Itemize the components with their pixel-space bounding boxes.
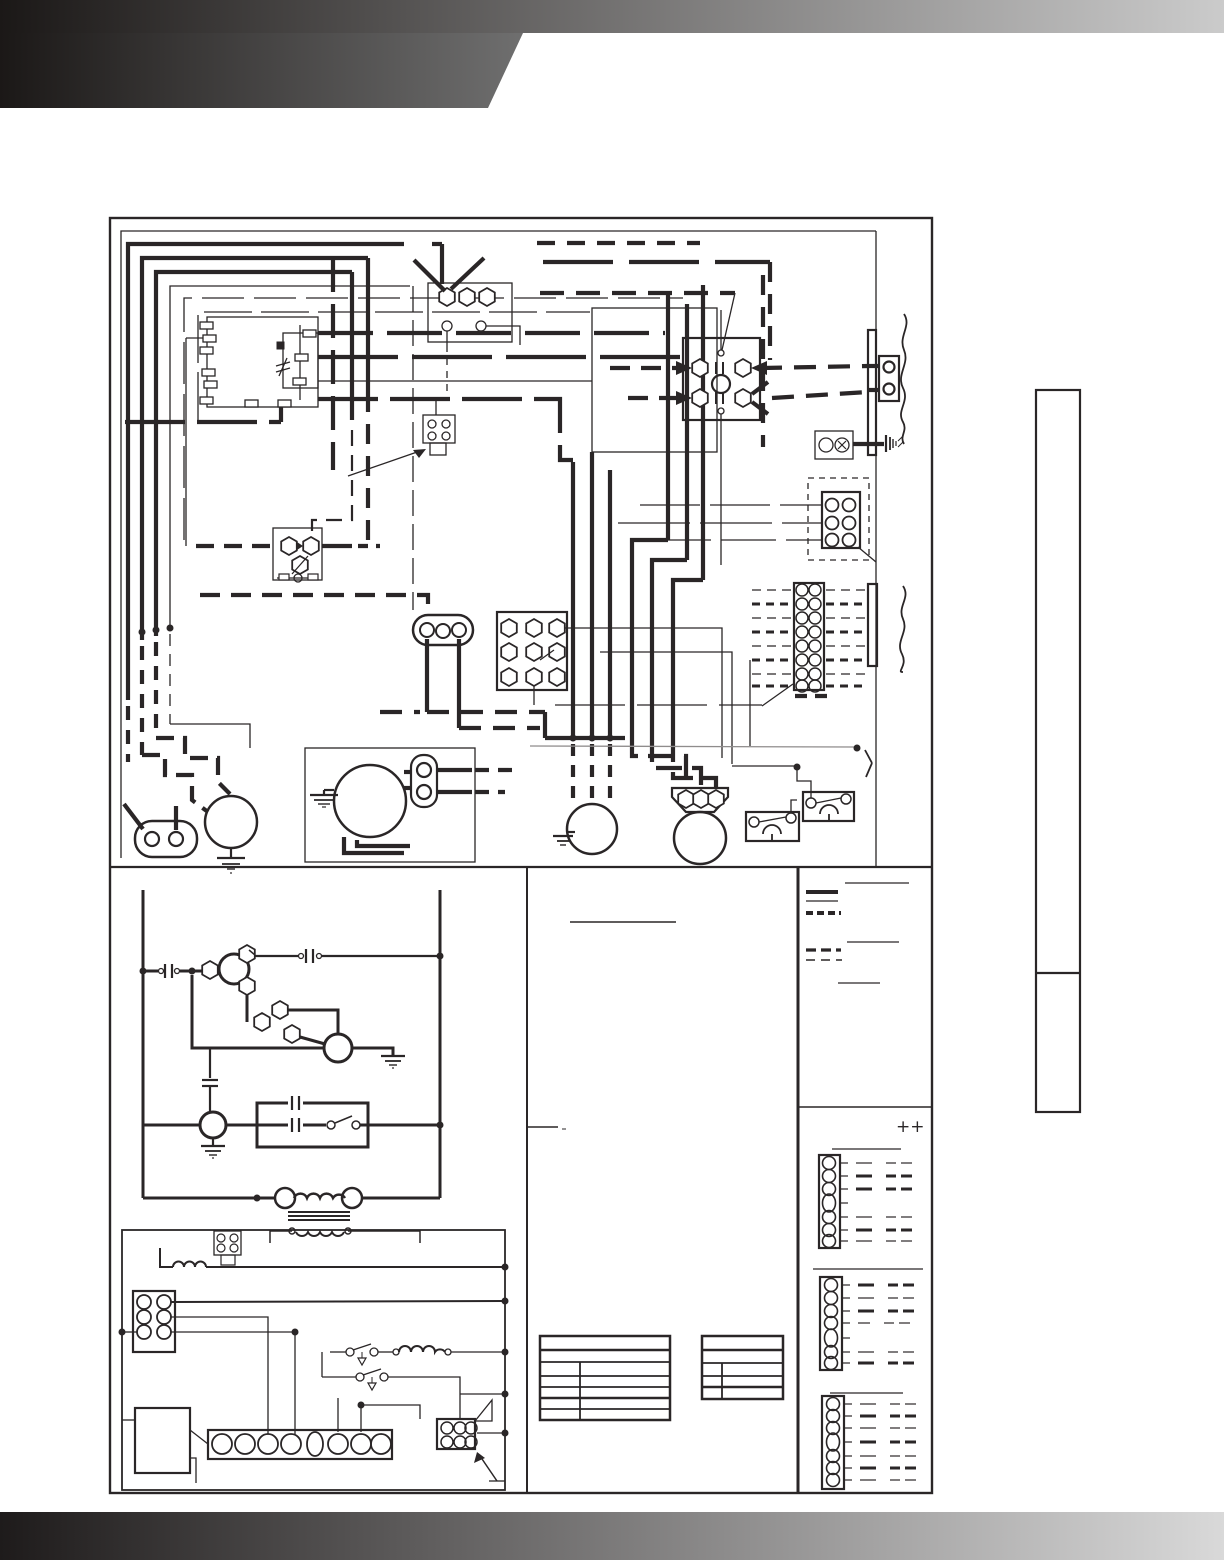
thermostat-strip-1: [819, 1155, 912, 1248]
igniter-box: [122, 1408, 208, 1483]
ladder-schematic: [140, 890, 444, 1243]
pressure-switch-1: [746, 812, 799, 841]
sidebar-tab: [1036, 390, 1080, 1112]
transformer: [270, 1188, 420, 1243]
thermostat-strip-2: [820, 1277, 914, 1370]
flame-rollout-switches: [322, 1344, 388, 1390]
plug-connector-4pin: [348, 400, 455, 476]
table-2: [702, 1336, 783, 1399]
blower-motor-box: [305, 748, 520, 862]
compressor: [672, 788, 728, 864]
document-page: ++: [0, 0, 1224, 1560]
gas-control-section: [119, 1230, 509, 1490]
low-voltage-terminal-strip-16: [752, 583, 877, 696]
brace-icon: [900, 586, 906, 672]
oval-plug-2pin: [135, 806, 197, 857]
plug-6pin-gas: [133, 1291, 175, 1352]
wire-bundle: [530, 262, 855, 800]
oval-connector-3pin: [380, 615, 545, 728]
control-board: [200, 317, 684, 460]
field-wiring-edge: [808, 314, 907, 777]
plug-connector-4pin-small: [214, 1231, 241, 1265]
relay: [273, 528, 380, 582]
legend-note-marker: ++: [896, 1117, 925, 1137]
plug-6pin-ignition: [437, 1400, 492, 1449]
plug-2pin: [815, 431, 853, 459]
terminal-block-9-lug: [497, 612, 567, 705]
plug-6pin: [822, 492, 876, 562]
table-1: [540, 1336, 670, 1420]
contactor: [610, 338, 868, 420]
burner-terminal-strip-8: [208, 1430, 392, 1459]
blower-motor: [553, 804, 617, 854]
legend-column: ++: [798, 883, 932, 1489]
notes-column: [527, 922, 783, 1420]
chassis-ground-icon: [853, 435, 903, 452]
brace-icon: [901, 314, 907, 444]
motors-row: [135, 745, 861, 874]
thermostat-strip-3: [822, 1396, 916, 1489]
induced-draft-motor: [205, 796, 257, 873]
header-gradient-band: [0, 0, 1224, 108]
door-interlock-switch: [414, 258, 520, 398]
footer-gradient-band: [0, 1512, 1224, 1560]
